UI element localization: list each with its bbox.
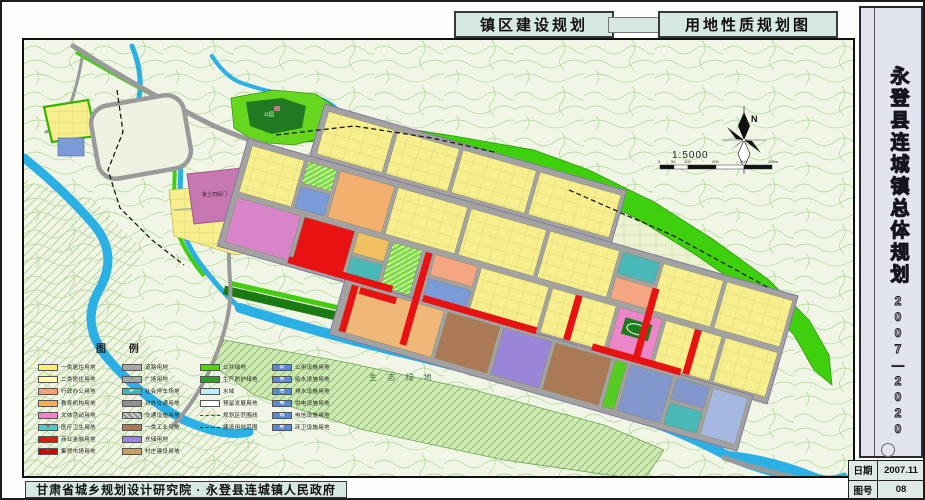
svg-text:50: 50 (671, 159, 676, 164)
legend-swatch (200, 364, 220, 371)
legend-swatch (38, 436, 58, 443)
legend-item: 讯电信设施用地 (272, 409, 346, 421)
legend-label: 公共绿地 (223, 363, 246, 371)
legend-item: 教育机构用地 (38, 397, 122, 409)
north-label: N (751, 114, 758, 124)
sheet-title-right-text: 用地性质规划图 (685, 14, 811, 35)
legend-label: 对外交通用地 (145, 399, 180, 407)
legend-item: 水域 (200, 385, 272, 397)
legend-label: 一类工业用地 (145, 423, 180, 431)
legend-item: 一类居住用地 (38, 361, 122, 373)
sheet-number-value: 08 (878, 480, 925, 500)
legend-item: 交通设施用地 (122, 409, 200, 421)
legend-item: 仓储用地 (122, 433, 200, 445)
sheet-number-label: 图号 (849, 480, 878, 500)
legend-columns: 一类居住用地二类居住用地行政办公用地教育机构用地文体活动用地+医疗卫生用地商业金… (38, 361, 348, 457)
sheet-title-left: 镇区建设规划 (454, 11, 614, 38)
legend-label: 电信设施用地 (295, 411, 330, 419)
svg-text:300: 300 (740, 159, 747, 164)
legend-item: ▪广场用地 (122, 373, 200, 385)
legend-item: 道路用地 (122, 361, 200, 373)
legend-swatch (122, 412, 142, 419)
legend-item: 对外交通用地 (122, 397, 200, 409)
sheet-title-right: 用地性质规划图 (658, 11, 838, 38)
legend-column-2: 道路用地▪广场用地P社会停车场地对外交通用地交通设施用地一类工业用地仓储用地村庄… (122, 361, 200, 457)
legend-swatch: ◦ (38, 448, 58, 455)
sheet-title-left-text: 镇区建设规划 (480, 14, 588, 35)
legend-item: 行政办公用地 (38, 385, 122, 397)
park-temple-dot (274, 106, 280, 111)
title-connector (608, 17, 660, 33)
park-label: 公园 (264, 112, 274, 118)
ring-road-block (88, 92, 193, 181)
date-value: 2007.11 (878, 461, 925, 481)
legend-swatch: P (122, 388, 142, 395)
legend-label: 仓储用地 (145, 435, 168, 443)
legend-title: 图 例 (96, 340, 348, 355)
map-legend: 图 例 一类居住用地二类居住用地行政办公用地教育机构用地文体活动用地+医疗卫生用… (38, 340, 348, 457)
legend-label: 公用设施用地 (295, 363, 330, 371)
sidebar-strip (861, 8, 875, 456)
legend-item: 公共绿地 (200, 361, 272, 373)
legend-label: 给水设施用地 (295, 375, 330, 383)
legend-label: 水域 (223, 387, 235, 395)
legend-label: 行政办公用地 (61, 387, 96, 395)
legend-label: 村庄建设用地 (145, 447, 180, 455)
legend-label: 生产防护绿地 (223, 375, 258, 383)
legend-label: 道路用地 (145, 363, 168, 371)
legend-item: 电供电设施用地 (272, 397, 346, 409)
plan-title-vertical: 永登县连城镇总体规划 (889, 66, 908, 286)
nw-blue-parcel (58, 138, 84, 156)
legend-label: 文体活动用地 (61, 411, 96, 419)
yamen-label: 鲁土司衙门 (202, 191, 227, 198)
plan-period-vertical: 2007—2020 (892, 294, 904, 438)
legend-label: 交通设施用地 (145, 411, 180, 419)
legend-item: 商业金融用地 (38, 433, 122, 445)
legend-swatch (122, 424, 142, 431)
legend-swatch: + (38, 424, 58, 431)
legend-swatch (122, 436, 142, 443)
legend-swatch (122, 448, 142, 455)
legend-column-3: 公共绿地生产防护绿地水域预留发展用地规划区范围线建设用地范围 (200, 361, 272, 457)
legend-label: 社会停车场地 (145, 387, 180, 395)
credit-box: 甘肃省城乡规划设计研究院 · 永登县连城镇人民政府 (25, 481, 347, 498)
legend-swatch (200, 388, 220, 395)
legend-item: 文体活动用地 (38, 409, 122, 421)
stamp-circle (881, 443, 895, 457)
svg-text:200: 200 (712, 159, 719, 164)
legend-swatch: 公 (272, 364, 292, 371)
legend-swatch (122, 364, 142, 371)
legend-swatch: 电 (272, 400, 292, 407)
legend-label: 广场用地 (145, 375, 168, 383)
legend-label: 一类居住用地 (61, 363, 96, 371)
legend-swatch (200, 376, 220, 383)
legend-label: 排水设施用地 (295, 387, 330, 395)
legend-label: 供电设施用地 (295, 399, 330, 407)
legend-swatch (38, 400, 58, 407)
legend-item: 环环卫设施用地 (272, 421, 346, 433)
legend-label: 环卫设施用地 (295, 423, 330, 431)
legend-label: 商业金融用地 (61, 435, 96, 443)
plan-sheet: 镇区建设规划 用地性质规划图 (0, 0, 925, 500)
legend-swatch: 污 (272, 388, 292, 395)
legend-item: 公公用设施用地 (272, 361, 346, 373)
legend-swatch (38, 412, 58, 419)
legend-label: 二类居住用地 (61, 375, 96, 383)
sheet-info-table: 日期 2007.11 图号 08 (848, 460, 925, 500)
legend-label: 建设用地范围 (223, 423, 258, 431)
legend-swatch: 水 (272, 376, 292, 383)
legend-swatch (38, 364, 58, 371)
legend-item: 预留发展用地 (200, 397, 272, 409)
legend-label: 规划区范围线 (223, 411, 258, 419)
legend-column-4: 公公用设施用地水给水设施用地污排水设施用地电供电设施用地讯电信设施用地环环卫设施… (272, 361, 346, 457)
legend-swatch (200, 415, 220, 416)
credit-text: 甘肃省城乡规划设计研究院 · 永登县连城镇人民政府 (36, 481, 336, 498)
legend-item: +医疗卫生用地 (38, 421, 122, 433)
legend-item: 村庄建设用地 (122, 445, 200, 457)
legend-swatch (38, 388, 58, 395)
legend-swatch: ▪ (122, 376, 142, 383)
nw-yellow-parcel (44, 100, 96, 142)
date-label: 日期 (849, 461, 878, 481)
title-block-sidebar: 永登县连城镇总体规划 2007—2020 (859, 6, 923, 458)
legend-label: 集贸市场用地 (61, 447, 96, 455)
legend-swatch (122, 400, 142, 407)
legend-item: 生产防护绿地 (200, 373, 272, 385)
legend-swatch (200, 427, 220, 428)
legend-item: 污排水设施用地 (272, 385, 346, 397)
legend-item: 水给水设施用地 (272, 373, 346, 385)
legend-swatch (38, 376, 58, 383)
svg-text:400m: 400m (768, 159, 779, 164)
svg-text:100: 100 (684, 159, 691, 164)
legend-item: 建设用地范围 (200, 421, 272, 433)
legend-item: 二类居住用地 (38, 373, 122, 385)
legend-item: 规划区范围线 (200, 409, 272, 421)
eco-green-label: 生 态 绿 地 (369, 372, 436, 382)
legend-item: P社会停车场地 (122, 385, 200, 397)
legend-item: ◦集贸市场用地 (38, 445, 122, 457)
legend-column-1: 一类居住用地二类居住用地行政办公用地教育机构用地文体活动用地+医疗卫生用地商业金… (38, 361, 122, 457)
sidebar-main: 永登县连城镇总体规划 2007—2020 (875, 8, 921, 456)
legend-label: 医疗卫生用地 (61, 423, 96, 431)
legend-swatch: 讯 (272, 412, 292, 419)
legend-swatch: 环 (272, 424, 292, 431)
legend-label: 预留发展用地 (223, 399, 258, 407)
legend-label: 教育机构用地 (61, 399, 96, 407)
legend-swatch (200, 400, 220, 407)
legend-item: 一类工业用地 (122, 421, 200, 433)
